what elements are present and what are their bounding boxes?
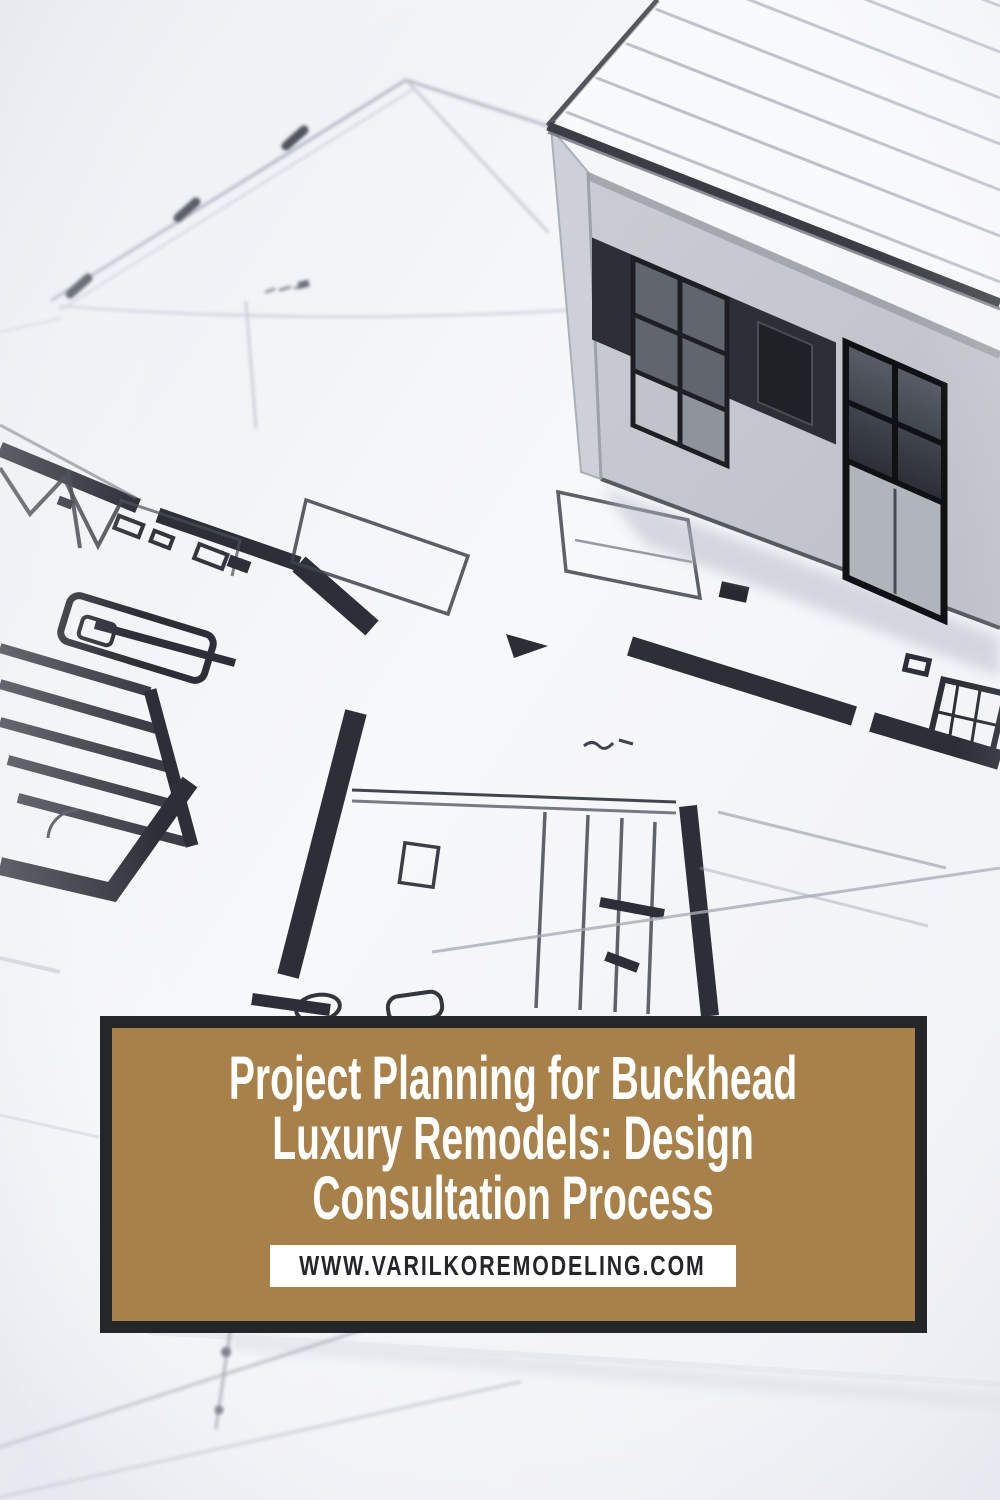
title-line-2: Luxury Remodels: Design [229,1109,797,1169]
website-strip: WWW.VARILKOREMODELING.COM [270,1245,736,1287]
title-line-1: Project Planning for Buckhead [229,1049,797,1109]
website-url: WWW.VARILKOREMODELING.COM [299,1250,705,1282]
pin-title: Project Planning for Buckhead Luxury Rem… [229,1049,797,1228]
pinterest-pin: Project Planning for Buckhead Luxury Rem… [0,0,1000,1500]
banner-background: Project Planning for Buckhead Luxury Rem… [112,1028,915,1321]
title-banner: Project Planning for Buckhead Luxury Rem… [100,1016,927,1333]
title-line-3: Consultation Process [229,1169,797,1229]
